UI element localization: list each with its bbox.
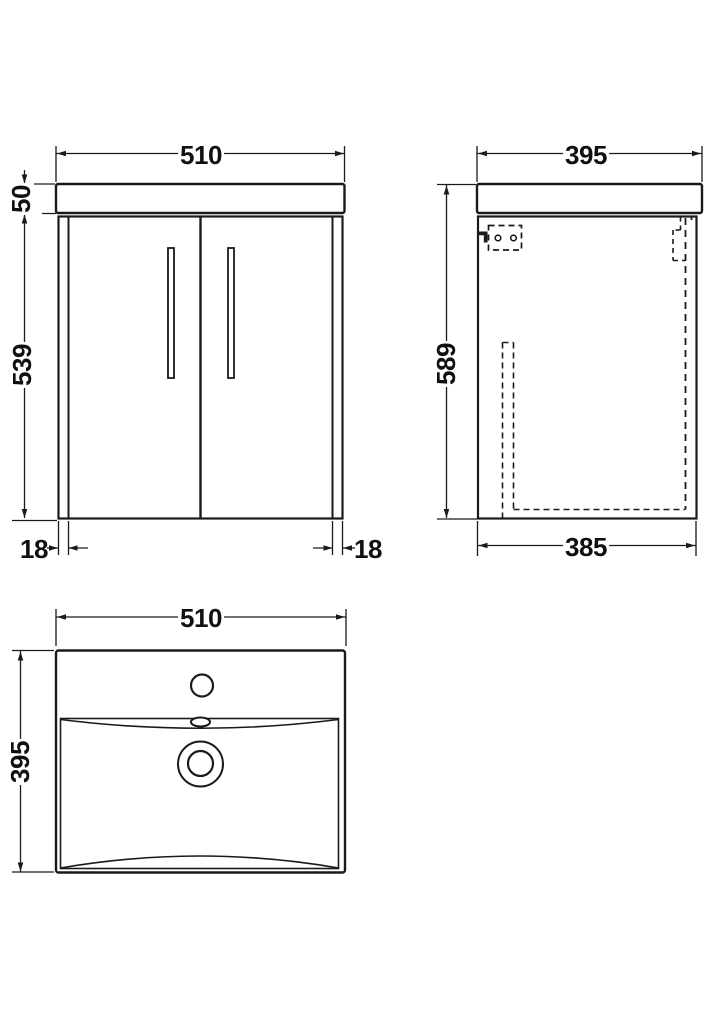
basin-tap-hole [191,675,213,697]
front-left-panel-dim-label: 18 [18,536,50,562]
side-cabinet-body [478,217,697,519]
front-width-dim-label: 510 [178,142,224,168]
basin-waste-outer [178,742,223,787]
side-worktop [477,184,702,213]
front-worktop-height-dim-label: 50 [8,183,34,215]
side-body-depth-dim-label: 385 [563,534,609,560]
drawing-linework [0,0,724,1024]
side-depth-dim-label: 395 [563,142,609,168]
basin-overflow-slot [191,718,210,727]
basin-depth-dim-label: 395 [7,739,33,785]
side-handle-hidden-outline [673,217,685,261]
side-interior-hidden-lines [503,343,686,521]
front-body-height-dim-label: 539 [9,342,35,388]
bracket-screw-left [495,235,501,241]
basin-width-dim-label: 510 [178,605,224,631]
basin-front-bowl-curve [61,856,339,868]
bracket-screw-right [511,235,517,241]
technical-drawing-canvas: 510 50 539 18 18 395 589 385 510 395 [0,0,724,1024]
side-view-linework [437,146,702,556]
basin-view-linework [12,609,346,873]
front-right-panel-dim-label: 18 [352,536,384,562]
side-height-dim-label: 589 [433,341,459,387]
front-worktop [56,184,345,213]
door-handle-right [228,248,234,378]
front-view-linework [12,146,355,555]
door-handle-left [168,248,174,378]
